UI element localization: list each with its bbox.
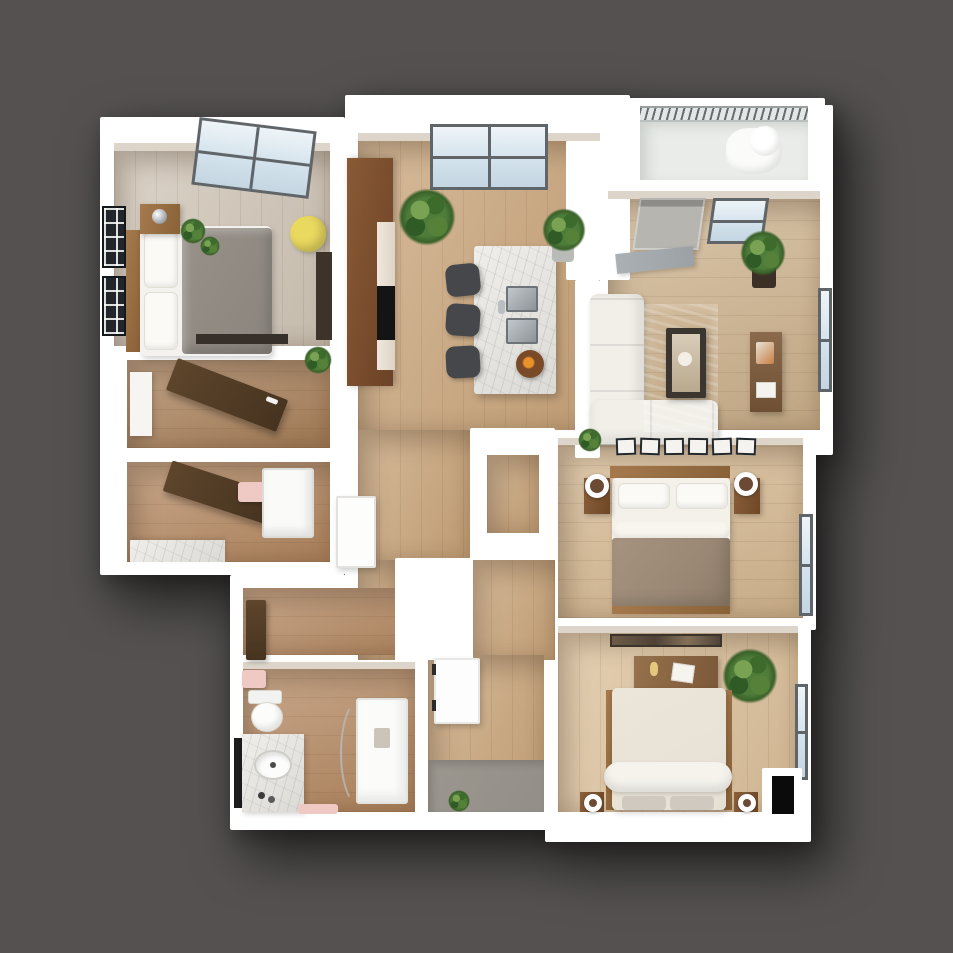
entry-floor-mat [428, 760, 544, 812]
bedroom1-desk [316, 252, 332, 340]
floor-hall-master-entry [470, 560, 555, 660]
bedroom1-desk-chair [290, 216, 326, 252]
bedroom1-pillow-1 [144, 232, 178, 288]
hall-plant-corner [304, 346, 332, 374]
living-console-books [756, 382, 776, 398]
bedroom1-left-window-2 [102, 276, 126, 336]
bath1-mat-pink [298, 804, 338, 814]
kitchen-sink-2 [506, 318, 538, 344]
bed3-ring-lamp-right [738, 794, 756, 812]
kitchen-fruit-bowl [516, 350, 544, 378]
closet-shelf [130, 372, 152, 436]
living-console-decor [756, 342, 774, 364]
window-mullion [433, 156, 545, 159]
bath2-shower-stall [262, 468, 314, 538]
living-right-window [818, 288, 832, 392]
bedroom1-media-strip [196, 334, 288, 344]
bed3-pillow-2 [670, 796, 714, 810]
window-mullion [713, 220, 763, 223]
bedroom1-headboard [126, 230, 140, 352]
bath1-toilet-bowl [251, 702, 283, 732]
wallface-bathroom1-top [243, 662, 415, 669]
bed3-wall-mirror [610, 634, 722, 647]
bath1-faucet [270, 762, 276, 768]
master-headboard [610, 466, 730, 478]
hall-lower-door-brown [246, 600, 266, 660]
entry-small-plant [448, 790, 470, 812]
kitchen-bar-stool-1 [444, 262, 481, 297]
bed3-right-window [795, 684, 808, 780]
floor-balcony [640, 116, 808, 180]
window-mullion [802, 564, 810, 567]
master-mirror-lamp-right [734, 472, 758, 496]
master-gallery-frame-2 [640, 438, 661, 456]
bed3-pillow-1 [622, 796, 666, 810]
bed3-dresser-vase [650, 662, 658, 676]
bath1-mirror-black [234, 738, 242, 808]
floor-closet-niche [487, 455, 539, 533]
bath1-shower-glass-arc [340, 700, 378, 806]
balcony-railing [640, 106, 808, 122]
kitchen-bar-stool-2 [445, 303, 481, 337]
living-sofa-plant [578, 428, 602, 452]
entry-door-hinge-1 [432, 664, 436, 675]
bedroom1-left-window-1 [102, 206, 126, 268]
master-pillow-1 [618, 483, 670, 509]
living-corner-plant [740, 230, 786, 276]
master-gallery-frame-5 [712, 438, 733, 456]
master-right-window [799, 514, 813, 616]
master-gallery-frame-4 [688, 438, 708, 455]
hall-white-door [336, 496, 376, 568]
bedroom1-pillow-2 [144, 292, 178, 350]
kitchen-plant-large [398, 188, 456, 246]
kitchen-sink-1 [506, 286, 538, 312]
entry-door-hinge-2 [432, 700, 436, 711]
kitchen-faucet [498, 300, 505, 314]
kitchen-plant-right [542, 208, 586, 252]
living-balcony-door [632, 198, 705, 250]
floor-plan-stage [0, 0, 953, 953]
master-gallery-frame-6 [736, 438, 757, 456]
bath2-counter [130, 540, 225, 562]
bedroom1-plant-2 [200, 236, 220, 256]
bed3-dresser-paper [671, 663, 695, 684]
master-pillow-2 [676, 483, 728, 509]
bath2-towel-pink [238, 482, 264, 502]
master-gallery-frame-1 [616, 438, 637, 456]
window-mullion [821, 339, 829, 342]
bath1-towel-pink [242, 670, 266, 688]
kitchen-window [430, 124, 548, 190]
entry-door [434, 658, 480, 724]
bed3-wall-tv [772, 776, 794, 814]
bed3-ring-lamp-left [584, 794, 602, 812]
wall-hall-chunk [395, 558, 473, 660]
living-table-art-moon [678, 352, 692, 366]
bedroom1-skylight-window [191, 117, 316, 199]
master-duvet [612, 538, 730, 608]
balcony-lounge-cushion [750, 126, 780, 156]
master-mirror-lamp-left [585, 474, 609, 498]
kitchen-bar-stool-3 [445, 345, 481, 379]
apartment-floor-plan [0, 0, 953, 953]
wallface-bedroom3-top [558, 626, 798, 633]
bath1-accessory-dots [258, 792, 265, 799]
master-gallery-frame-3 [664, 438, 684, 455]
bedroom1-chrome-lamp [152, 209, 167, 224]
master-bed-foot-rail [612, 606, 730, 614]
apartment-shadow-wrap [0, 0, 953, 953]
window-mullion [798, 731, 805, 734]
kitchen-cooktop [377, 286, 395, 340]
bed3-duvet-roll [604, 762, 732, 792]
bath1-shower-head [374, 728, 390, 748]
screenshot-root: { "meta": { "kind": "3d-floor-plan-rende… [0, 0, 953, 953]
